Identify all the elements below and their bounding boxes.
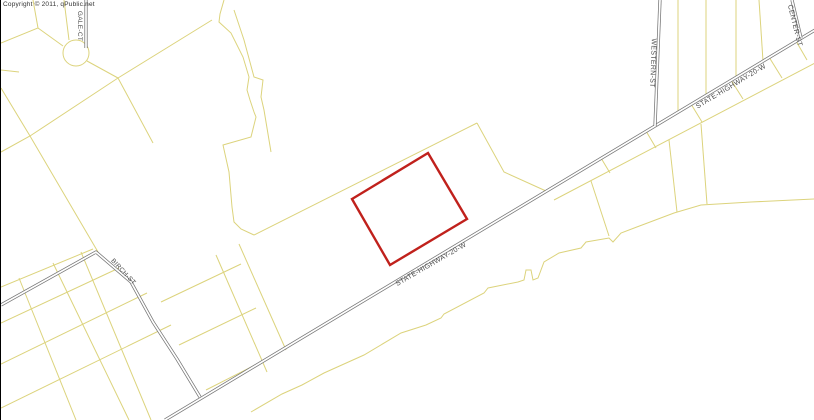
road-birch-st-centerline bbox=[1, 252, 200, 397]
parcel-line bbox=[161, 264, 241, 302]
parcel-line bbox=[81, 252, 151, 420]
parcel-line bbox=[701, 124, 707, 204]
parcel-line bbox=[759, 0, 763, 61]
parcel-line bbox=[1, 20, 212, 152]
parcel-line bbox=[1, 249, 93, 287]
parcel-line bbox=[646, 131, 656, 148]
label-western-st: WESTERN-ST bbox=[648, 38, 657, 88]
parcel-line bbox=[1, 88, 98, 252]
parcel-line bbox=[251, 199, 814, 412]
parcel-line bbox=[591, 181, 609, 236]
parcel-map[interactable]: GALE-CTWESTERN-STCENTER-STSTATE-HIGHWAY-… bbox=[0, 0, 814, 420]
copyright-notice: Copyright © 2011, qPublic.net bbox=[3, 1, 95, 8]
parcel-line bbox=[554, 63, 814, 200]
label-state-highway-20-w-lower: STATE-HIGHWAY-20-W bbox=[395, 242, 468, 288]
parcel-line bbox=[219, 0, 256, 235]
parcel-line bbox=[19, 278, 76, 420]
parcel-line bbox=[87, 61, 118, 78]
parcel-line bbox=[53, 263, 129, 420]
parcel-line bbox=[179, 308, 256, 345]
parcel-line bbox=[669, 140, 677, 212]
parcel-line bbox=[477, 123, 546, 191]
parcel-map-canvas: GALE-CTWESTERN-STCENTER-STSTATE-HIGHWAY-… bbox=[1, 0, 814, 420]
parcel-line bbox=[239, 244, 286, 350]
parcel-line bbox=[601, 158, 610, 173]
parcel-line bbox=[1, 325, 171, 408]
parcel-line bbox=[1, 293, 147, 364]
parcel-line bbox=[118, 78, 153, 143]
parcel-line bbox=[216, 255, 267, 372]
parcel-line bbox=[38, 28, 63, 46]
parcel-line bbox=[769, 57, 782, 78]
label-gale-ct: GALE-CT bbox=[76, 11, 83, 41]
label-birch-st: BIRCH-ST bbox=[109, 257, 137, 286]
road-birch-st-casing bbox=[1, 252, 200, 397]
parcel-line bbox=[1, 70, 19, 72]
